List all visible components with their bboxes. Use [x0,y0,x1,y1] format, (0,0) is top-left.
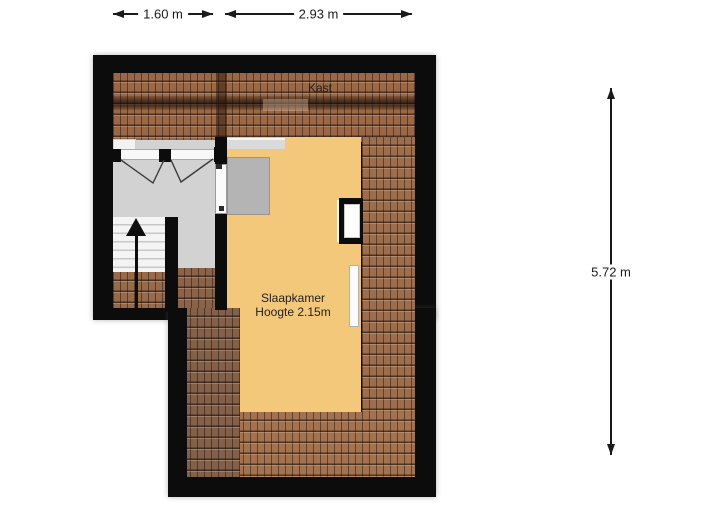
radiator [349,265,359,327]
label-kast: Kast [308,81,332,95]
window-glass [344,204,360,238]
roof-slope-left-upper [177,268,215,308]
double-door-swing-icon [113,158,223,186]
floor-plan-canvas: 1.60 m 2.93 m 5.72 m [0,0,720,509]
door-handle [219,206,224,211]
stairs-direction-arrow-shaft [135,233,138,308]
stair-wall [165,217,178,312]
kast-area-highlight [263,99,308,111]
roof-slope-left-lower [183,308,240,477]
divider-wall-bottom [215,212,227,310]
label-room-name: Slaapkamer [261,291,325,305]
roof-valley-seam [216,73,227,142]
landing-floor-extension [177,222,215,268]
label-room-height: Hoogte 2.15m [255,305,330,319]
dormer-area [227,157,270,215]
exterior-wall-left-lower [168,308,187,497]
roof-slope-over-stairs [113,272,165,308]
building: Kast Slaapkamer Hoogte 2.15m [0,0,720,509]
knee-wall-shelf [227,138,285,149]
stairs-up-arrow-icon [126,218,146,236]
